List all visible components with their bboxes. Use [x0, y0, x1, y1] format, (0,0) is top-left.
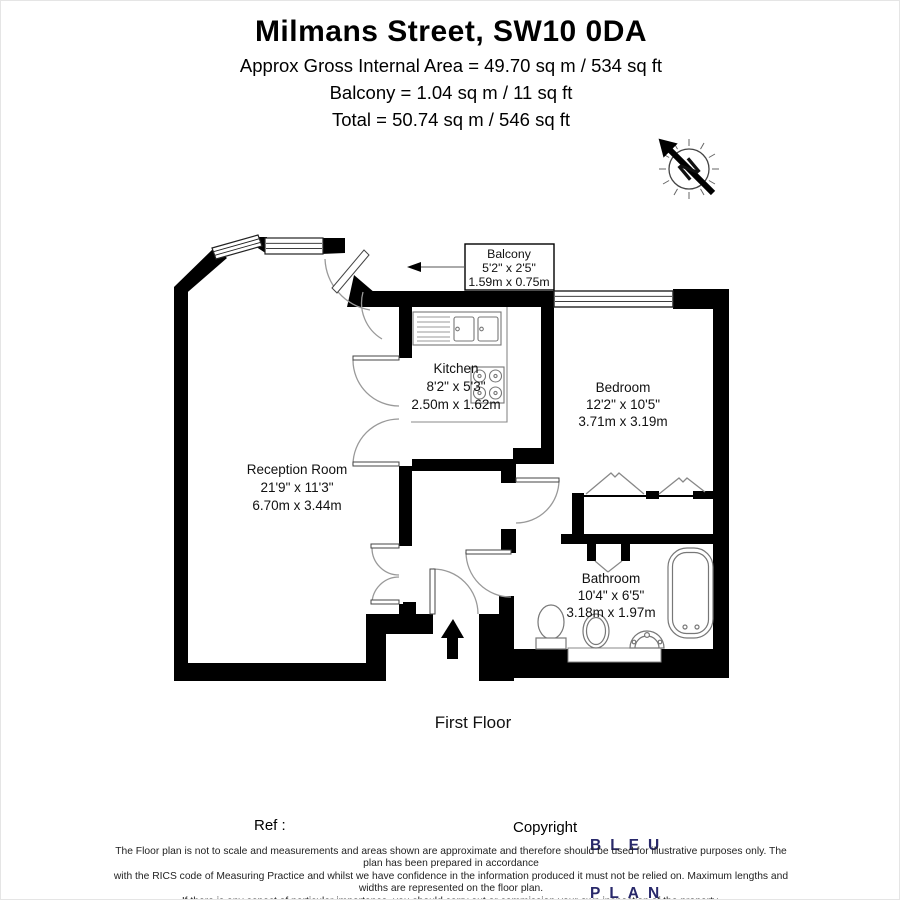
- disclaimer-text: The Floor plan is not to scale and measu…: [111, 846, 791, 900]
- balcony-label: Balcony: [487, 247, 532, 261]
- bay-window-diagonal: [212, 235, 262, 259]
- kitchen-door-arc-bottom: [353, 419, 399, 465]
- svg-text:8'2" x 5'3": 8'2" x 5'3": [426, 379, 485, 394]
- entrance-door-arc: [433, 569, 478, 614]
- wardrobe-bifold-doors: [586, 473, 705, 494]
- reception-room-label: Reception Room 21'9" x 11'3" 6.70m x 3.4…: [247, 462, 348, 513]
- bay-window-horizontal: [265, 238, 323, 254]
- disclaimer-line: If there is any aspect of particular imp…: [111, 896, 791, 900]
- kitchen-sink: [413, 312, 501, 345]
- balcony-callout: Balcony 5'2" x 2'5" 1.59m x 0.75m: [407, 244, 554, 290]
- hall-door-arc-top: [372, 548, 399, 575]
- svg-text:2.50m x 1.62m: 2.50m x 1.62m: [411, 397, 500, 412]
- svg-text:Kitchen: Kitchen: [433, 361, 478, 376]
- balcony-metric: 1.59m x 0.75m: [468, 275, 549, 289]
- svg-text:Bathroom: Bathroom: [582, 571, 641, 586]
- bathtub: [668, 548, 713, 638]
- bathroom-label: Bathroom 10'4" x 6'5" 3.18m x 1.97m: [566, 571, 655, 620]
- copyright-label: Copyright: [513, 819, 577, 836]
- disclaimer-line: The Floor plan is not to scale and measu…: [111, 846, 791, 871]
- floorplan-page: Milmans Street, SW10 0DA Approx Gross In…: [0, 0, 900, 900]
- svg-text:21'9" x 11'3": 21'9" x 11'3": [260, 480, 333, 495]
- svg-text:Reception Room: Reception Room: [247, 462, 348, 477]
- kitchen-door-arc-top: [353, 360, 399, 406]
- svg-text:10'4" x 6'5": 10'4" x 6'5": [578, 588, 645, 603]
- arrow-left-icon: [407, 262, 421, 272]
- bathroom-wall-recess: [568, 648, 661, 662]
- compass-north-icon: N: [652, 132, 721, 201]
- bathroom-door-arc: [466, 552, 511, 597]
- svg-text:3.71m x 3.19m: 3.71m x 3.19m: [578, 414, 667, 429]
- bedroom-label: Bedroom 12'2" x 10'5" 3.71m x 3.19m: [578, 380, 667, 429]
- wash-basin: [630, 631, 664, 648]
- ref-label: Ref :: [254, 817, 286, 834]
- svg-text:6.70m x 3.44m: 6.70m x 3.44m: [252, 498, 341, 513]
- floor-label: First Floor: [435, 713, 512, 732]
- toilet: [536, 605, 566, 649]
- bedroom-window: [554, 291, 673, 307]
- svg-text:3.18m x 1.97m: 3.18m x 1.97m: [566, 605, 655, 620]
- balcony-imperial: 5'2" x 2'5": [482, 261, 536, 275]
- disclaimer-line: with the RICS code of Measuring Practice…: [111, 871, 791, 896]
- entrance-arrow-icon: [441, 619, 464, 659]
- floor-plan-drawing: N: [1, 1, 900, 900]
- bedroom-door-arc: [516, 480, 559, 523]
- svg-text:12'2" x 10'5": 12'2" x 10'5": [586, 397, 660, 412]
- svg-text:Bedroom: Bedroom: [596, 380, 651, 395]
